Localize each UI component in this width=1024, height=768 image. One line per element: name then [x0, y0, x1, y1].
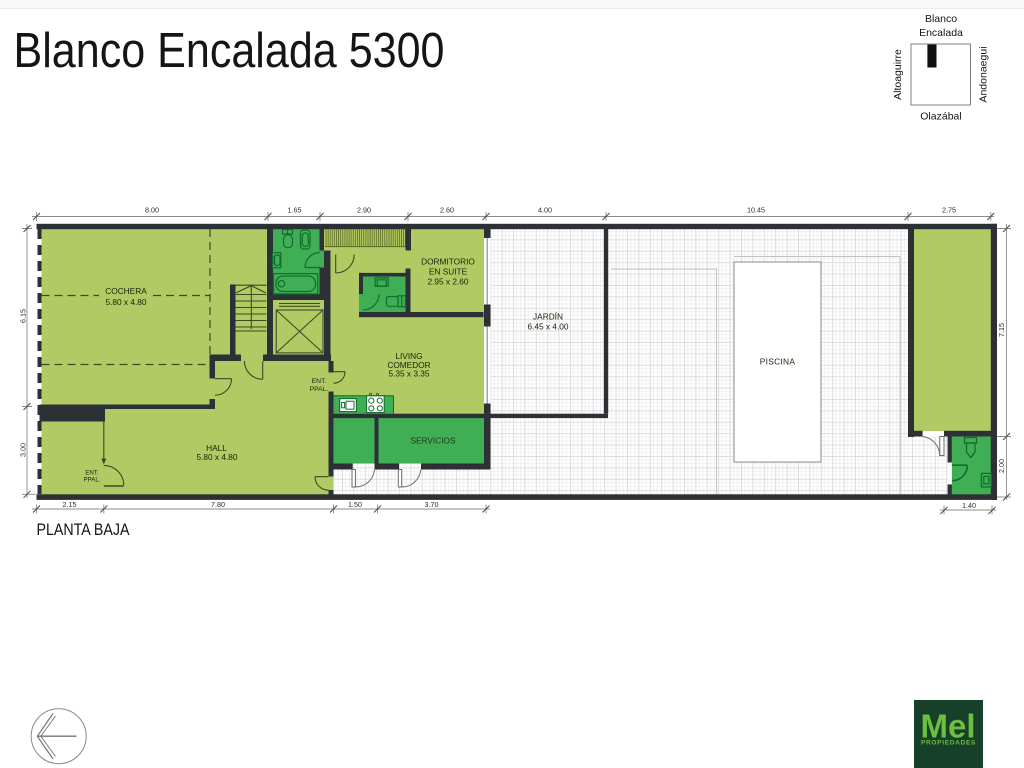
svg-text:1.65: 1.65 — [288, 206, 302, 215]
svg-text:EN SUITE: EN SUITE — [429, 267, 468, 277]
svg-text:6.15: 6.15 — [19, 309, 28, 323]
svg-text:Blanco: Blanco — [925, 13, 957, 25]
svg-text:1.40: 1.40 — [962, 501, 976, 510]
svg-text:5.80 x 4.80: 5.80 x 4.80 — [105, 297, 146, 307]
svg-text:3.70: 3.70 — [425, 500, 439, 509]
svg-text:Andonaegui: Andonaegui — [978, 46, 990, 102]
svg-text:PLANTA BAJA: PLANTA BAJA — [37, 521, 130, 539]
svg-text:5.35 x 3.35: 5.35 x 3.35 — [388, 369, 429, 379]
svg-text:2.95 x 2.60: 2.95 x 2.60 — [427, 277, 468, 287]
svg-text:ENT.: ENT. — [85, 470, 99, 477]
svg-text:Encalada: Encalada — [919, 27, 963, 39]
svg-text:5.80 x 4.80: 5.80 x 4.80 — [196, 452, 237, 462]
svg-text:Altoaguirre: Altoaguirre — [892, 49, 904, 100]
svg-text:7.80: 7.80 — [211, 500, 225, 509]
svg-text:PROPIEDADES: PROPIEDADES — [921, 740, 976, 747]
svg-text:PPAL.: PPAL. — [310, 386, 329, 393]
svg-text:2.90: 2.90 — [357, 206, 371, 215]
svg-text:2.15: 2.15 — [63, 500, 77, 509]
svg-text:10.45: 10.45 — [747, 206, 765, 215]
svg-text:PPAL.: PPAL. — [83, 477, 100, 484]
svg-text:DORMITORIO: DORMITORIO — [421, 257, 475, 267]
svg-text:SERVICIOS: SERVICIOS — [410, 436, 455, 446]
svg-text:Olazábal: Olazábal — [920, 111, 961, 123]
svg-text:8.00: 8.00 — [145, 206, 159, 215]
svg-text:2.60: 2.60 — [440, 206, 454, 215]
svg-text:ENT.: ENT. — [312, 378, 327, 385]
svg-text:COCHERA: COCHERA — [105, 286, 147, 296]
svg-text:JARDÍN: JARDÍN — [533, 312, 563, 322]
svg-text:Blanco Encalada 5300: Blanco Encalada 5300 — [14, 24, 445, 78]
svg-text:7.15: 7.15 — [997, 323, 1006, 337]
svg-text:1.50: 1.50 — [348, 500, 362, 509]
svg-text:2.75: 2.75 — [942, 206, 956, 215]
svg-text:PISCINA: PISCINA — [760, 357, 796, 367]
svg-text:6.45 x 4.00: 6.45 x 4.00 — [527, 322, 568, 332]
svg-text:3.00: 3.00 — [19, 443, 28, 457]
svg-text:2.00: 2.00 — [997, 459, 1006, 473]
svg-text:4.00: 4.00 — [538, 206, 552, 215]
